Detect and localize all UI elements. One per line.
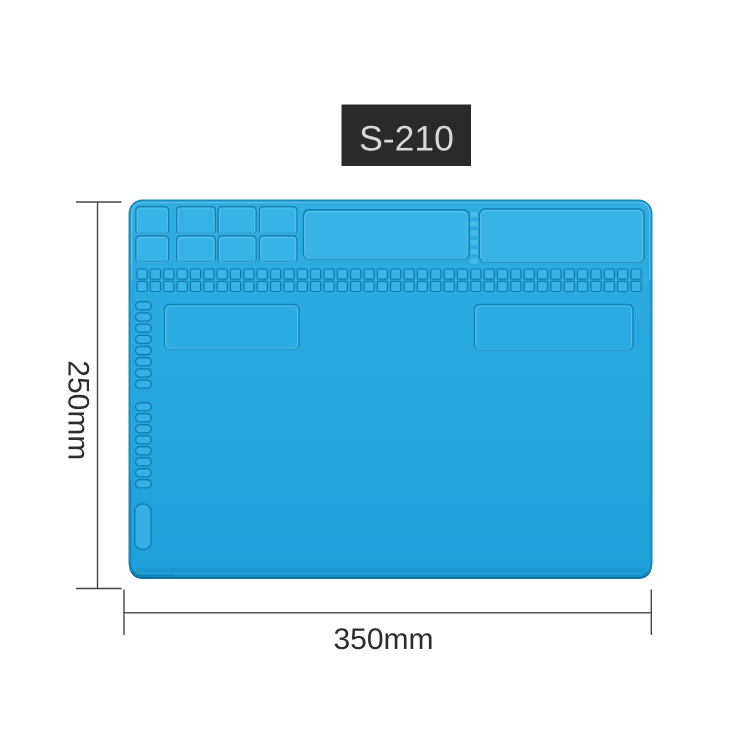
svg-text:S-210: S-210 — [359, 119, 454, 159]
svg-text:250mm: 250mm — [61, 360, 94, 460]
svg-text:350mm: 350mm — [333, 623, 433, 656]
